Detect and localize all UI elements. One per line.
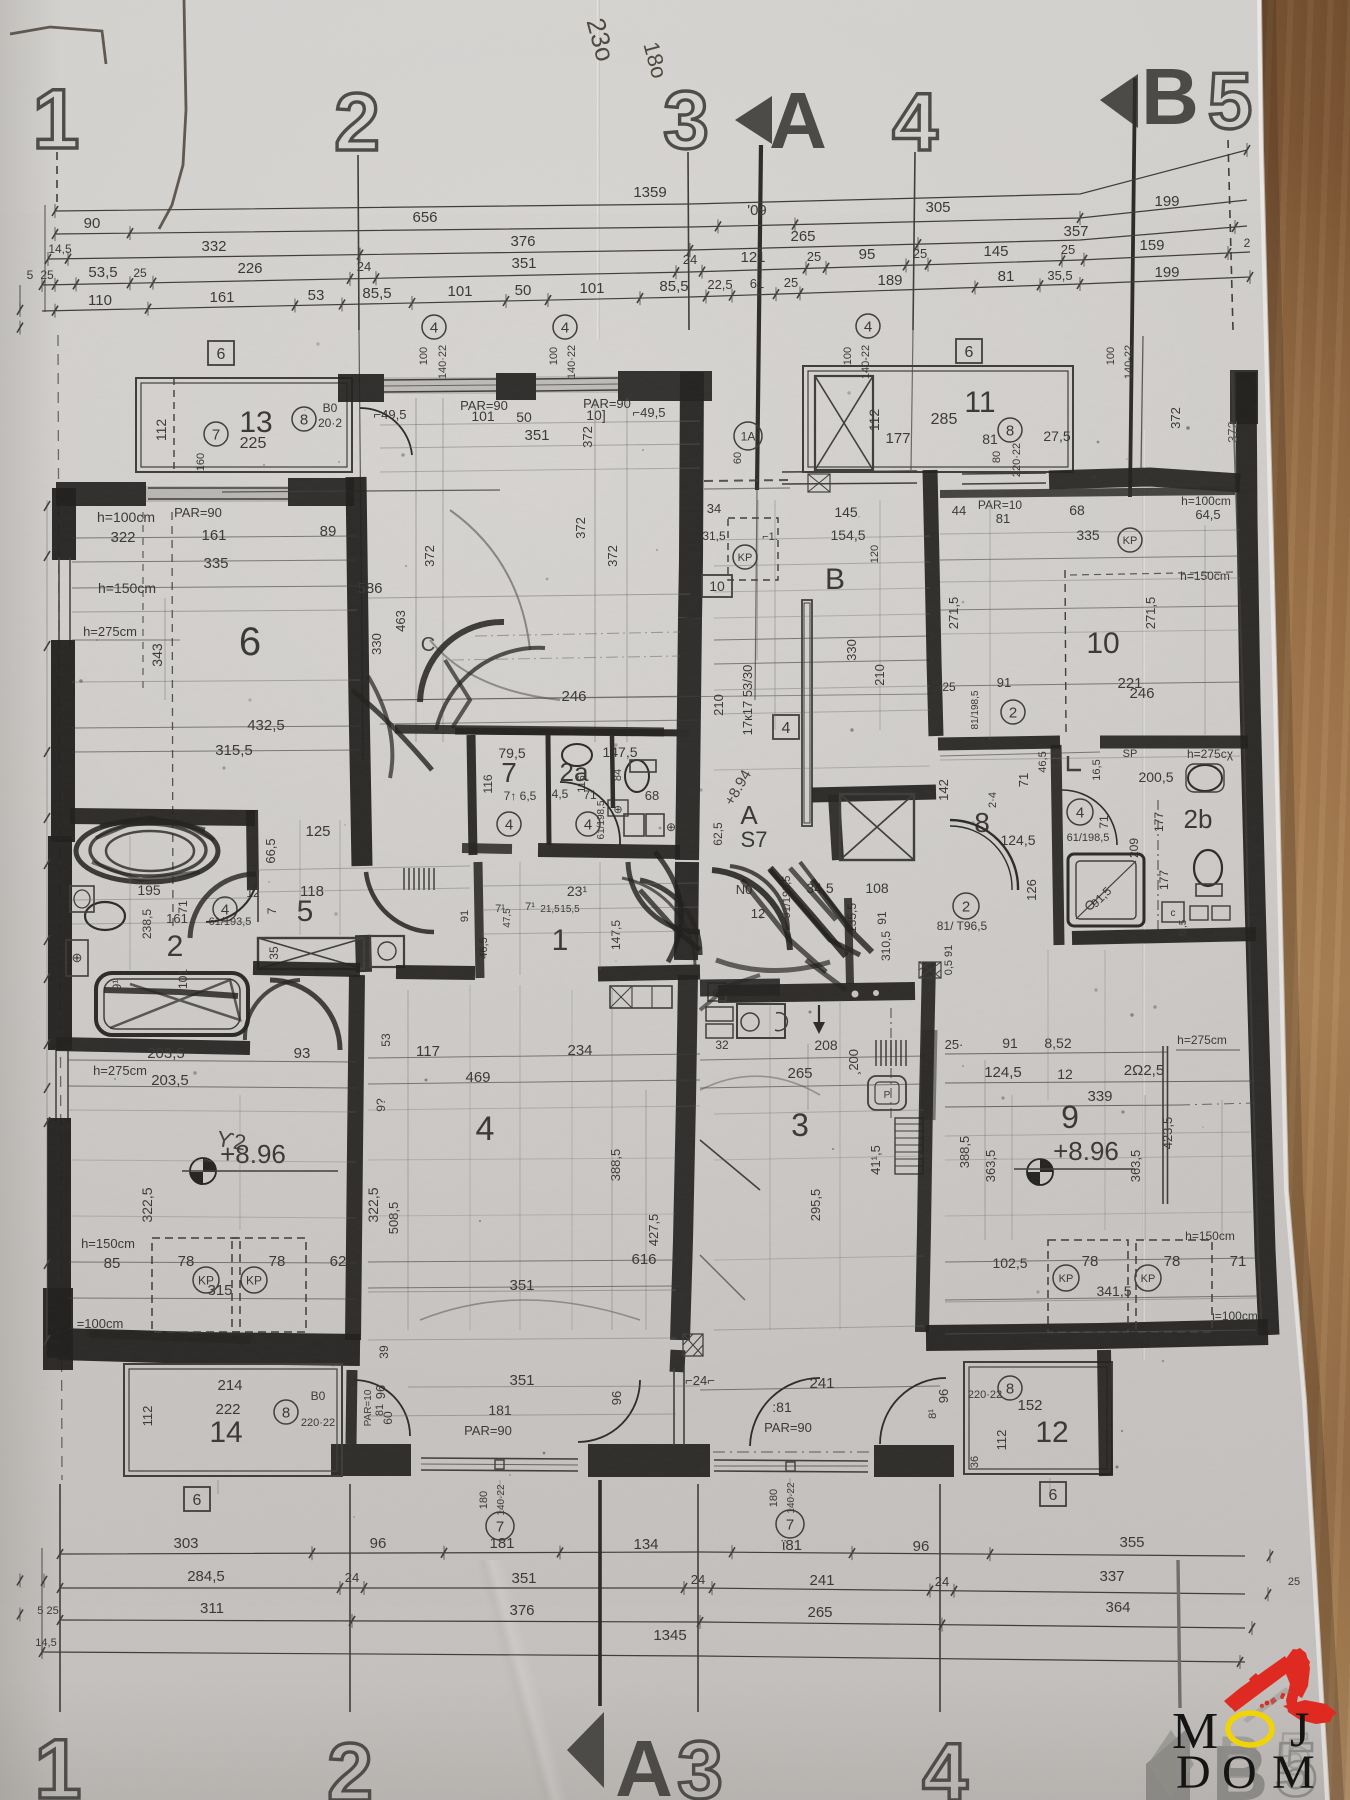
svg-text:25: 25	[1288, 1576, 1300, 1588]
svg-text:M: M	[1272, 1746, 1315, 1799]
